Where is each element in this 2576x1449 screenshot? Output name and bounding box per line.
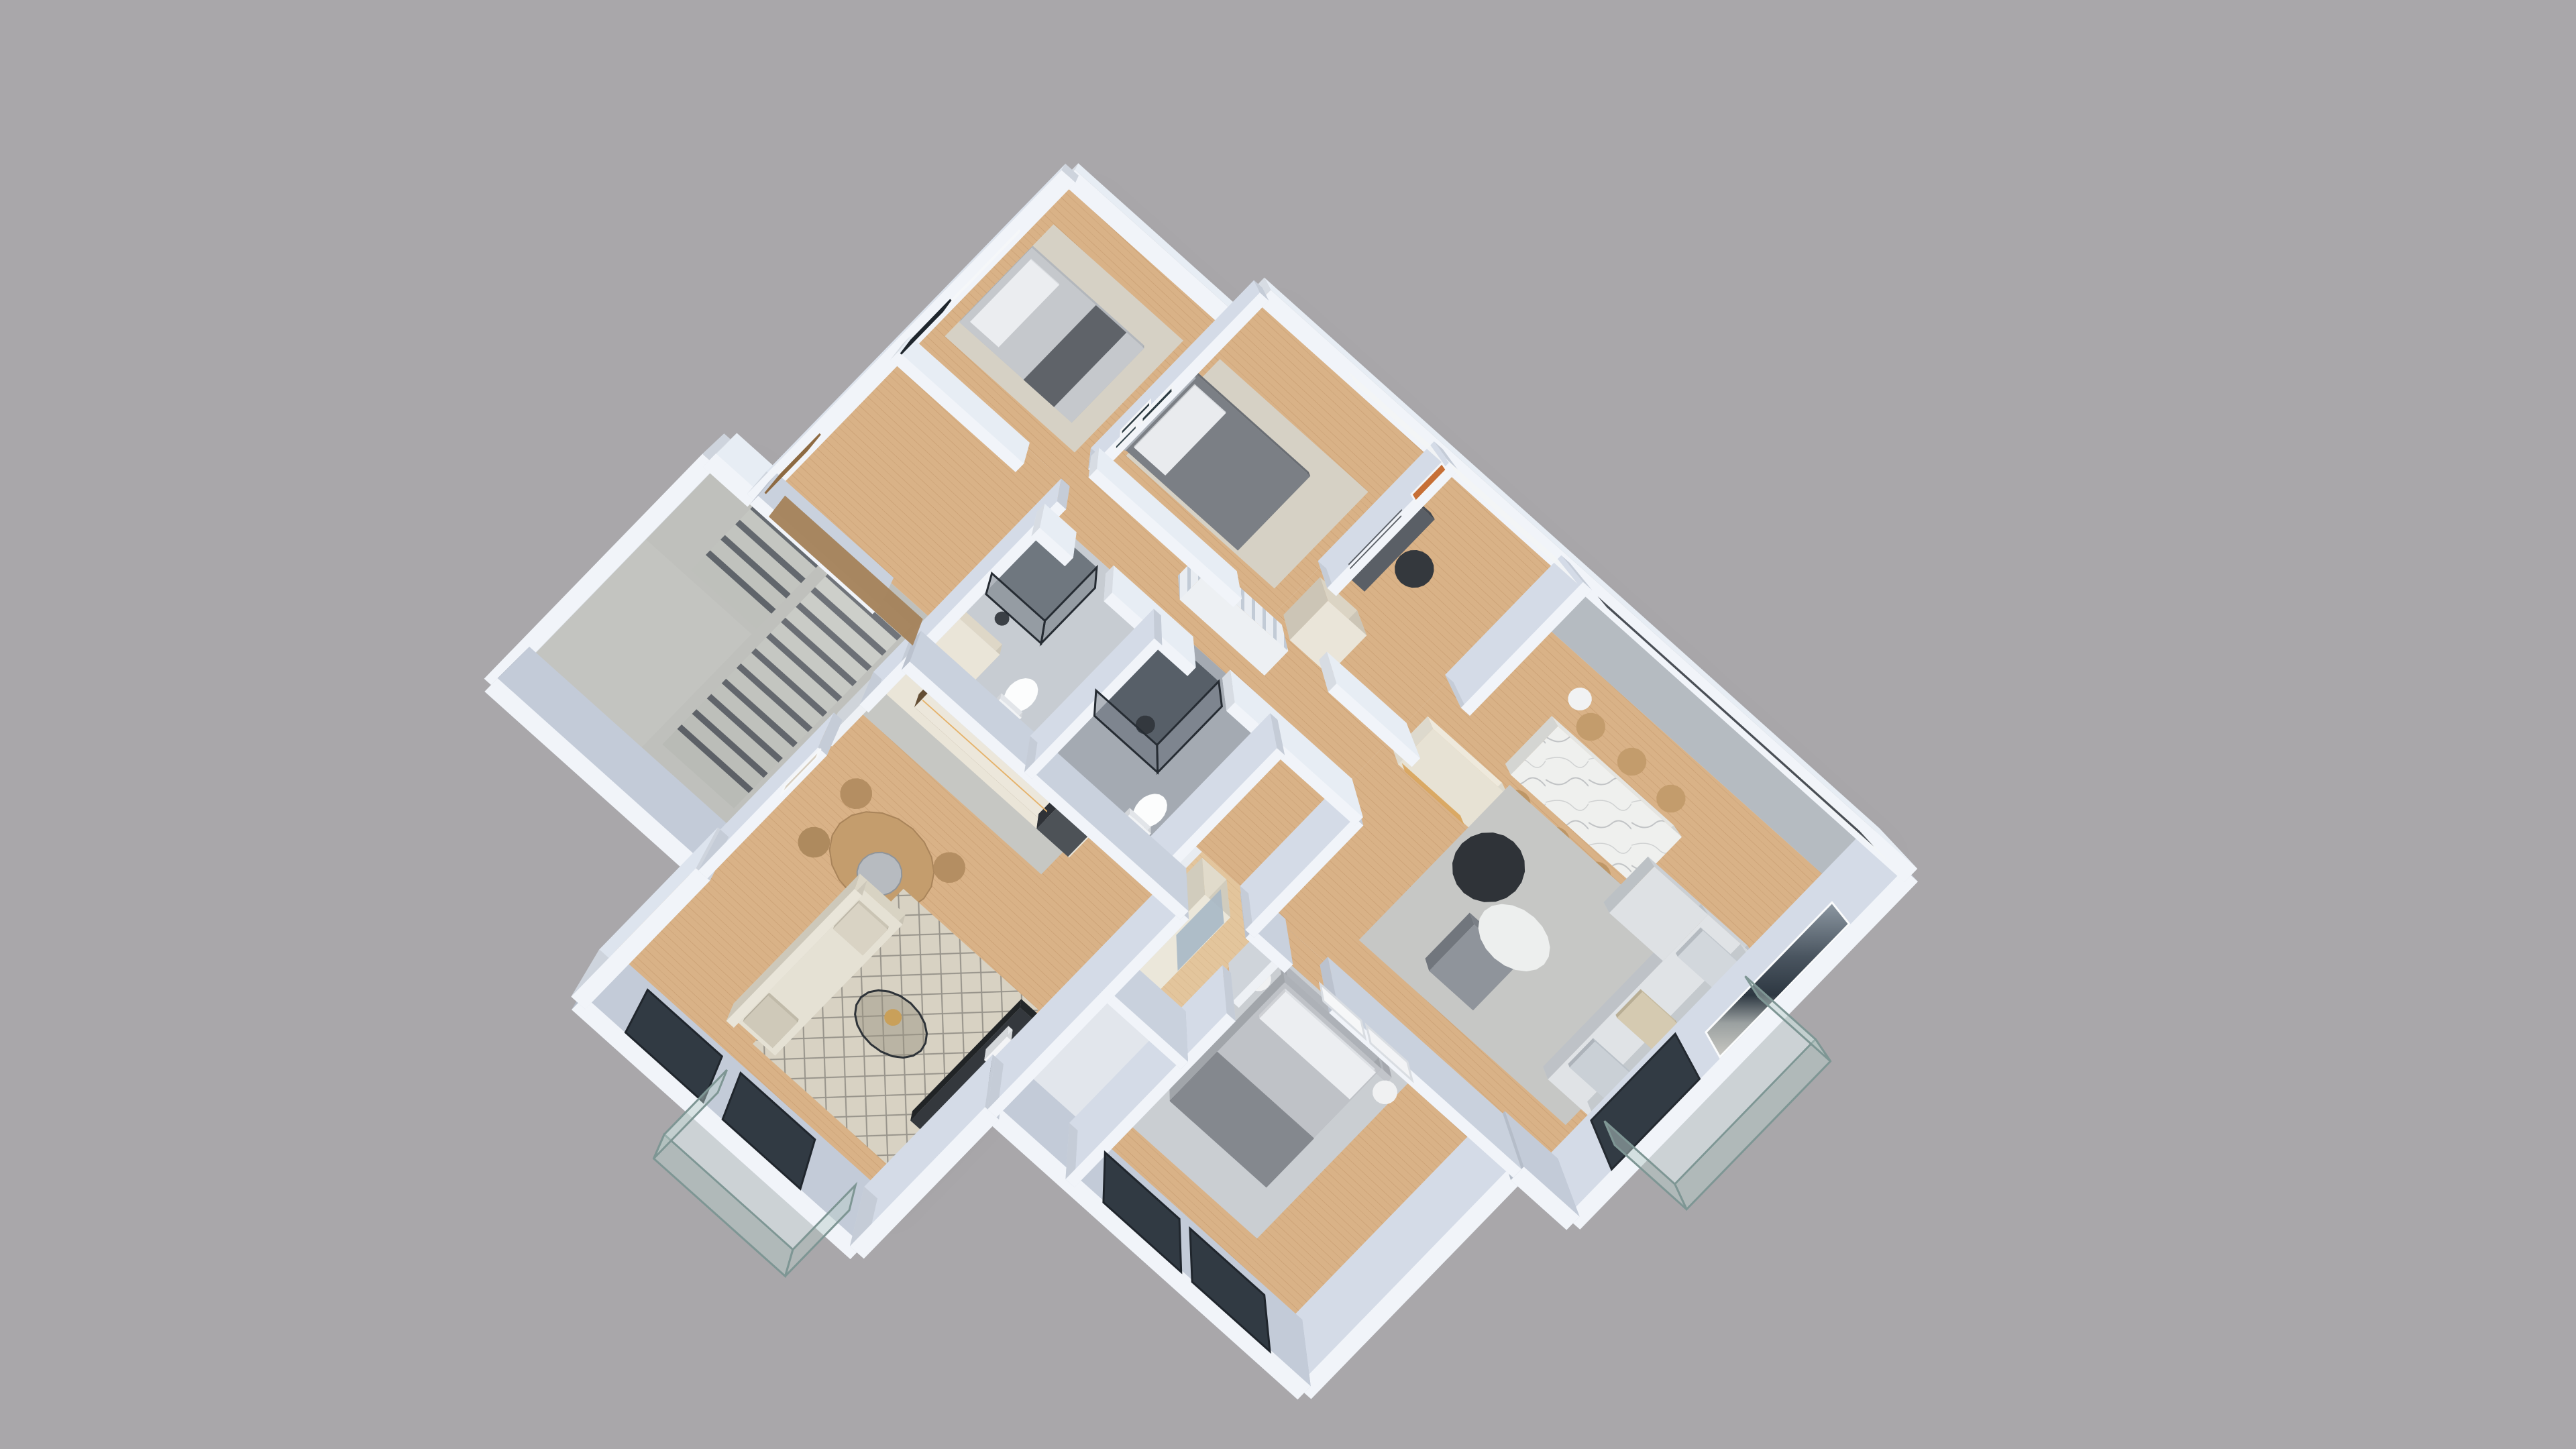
dining-chair xyxy=(1617,748,1646,776)
dining-chair-b xyxy=(840,778,872,809)
floor-lamp-living xyxy=(1568,688,1591,710)
decor-apartment-b xyxy=(884,1009,902,1026)
side-table-master xyxy=(1373,1081,1397,1104)
dining-chair xyxy=(1656,785,1685,813)
chair-office xyxy=(1395,550,1434,588)
dining-chair-b xyxy=(798,827,830,858)
dining-chair-b xyxy=(933,852,965,883)
floorplan-svg xyxy=(0,0,2576,1449)
dining-chair xyxy=(1576,713,1605,741)
coffee-table-dark xyxy=(1452,833,1525,902)
floorplan-render xyxy=(0,0,2576,1449)
